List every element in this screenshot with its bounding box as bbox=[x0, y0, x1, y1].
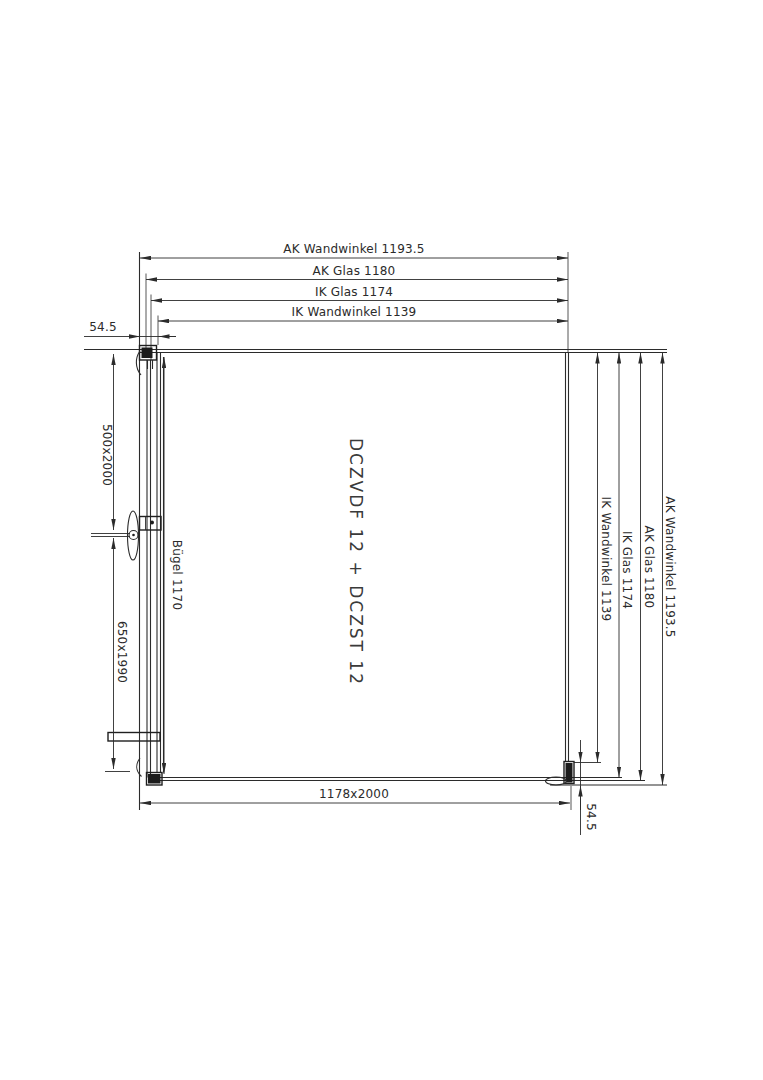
panel-outline bbox=[84, 252, 667, 810]
dim-label-ak-wandwinkel-top: AK Wandwinkel 1193.5 bbox=[283, 242, 424, 256]
shower-door-technical-drawing: AK Wandwinkel 1193.5 AK Glas 1180 IK Gla… bbox=[0, 0, 763, 1080]
floor-bracket-bar bbox=[108, 733, 160, 742]
dim-label-ik-wandwinkel-top: IK Wandwinkel 1139 bbox=[292, 305, 417, 319]
wall-bracket-bottom-right bbox=[546, 762, 575, 786]
technical-drawing-page: AK Wandwinkel 1193.5 AK Glas 1180 IK Gla… bbox=[0, 0, 763, 1080]
glass-size-label-upper: 500x2000 bbox=[100, 424, 114, 486]
wall-bracket-bottom-left bbox=[108, 733, 162, 786]
dim-label-ik-glas-top: IK Glas 1174 bbox=[315, 285, 393, 299]
seal-curve-top-left bbox=[136, 351, 141, 375]
glass-size-label-lower: 650x1990 bbox=[115, 621, 129, 683]
dimension-lines-left bbox=[105, 354, 164, 774]
dim-label-54-5-top-left: 54.5 bbox=[89, 320, 117, 334]
dim-label-ik-wandwinkel-right: IK Wandwinkel 1139 bbox=[599, 497, 613, 622]
dim-label-54-5-bottom-right: 54.5 bbox=[584, 803, 598, 831]
dim-label-ak-wandwinkel-right: AK Wandwinkel 1193.5 bbox=[663, 496, 677, 637]
dim-label-ak-glas-right: AK Glas 1180 bbox=[642, 526, 656, 609]
overall-size-label: 1178x2000 bbox=[319, 787, 389, 801]
bar-label-buegel: Bügel 1170 bbox=[170, 540, 184, 611]
product-code-label: DCZVDF 12 + DCZST 12 bbox=[346, 438, 366, 686]
dim-label-ak-glas-top: AK Glas 1180 bbox=[313, 264, 396, 278]
dim-label-ik-glas-right: IK Glas 1174 bbox=[620, 531, 634, 609]
